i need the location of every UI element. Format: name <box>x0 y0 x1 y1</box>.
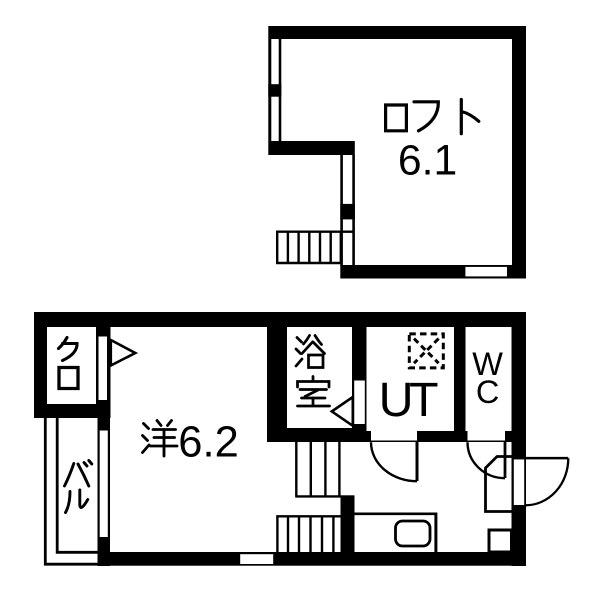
svg-text:6.2: 6.2 <box>178 419 238 467</box>
svg-text:6.1: 6.1 <box>398 136 457 184</box>
svg-text:UT: UT <box>379 373 438 427</box>
svg-text:C: C <box>476 374 499 410</box>
